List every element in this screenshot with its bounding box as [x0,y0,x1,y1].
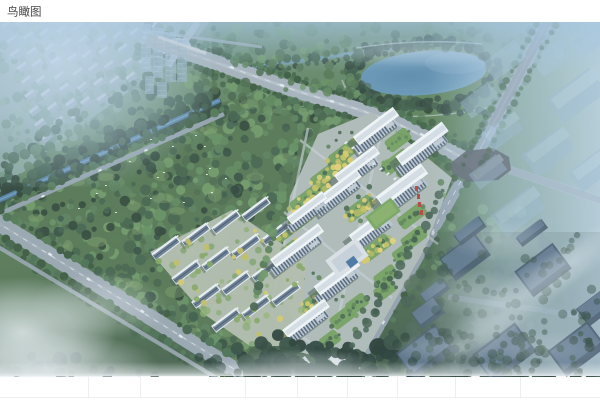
svg-text:鸟瞰图: 鸟瞰图 [7,5,42,19]
